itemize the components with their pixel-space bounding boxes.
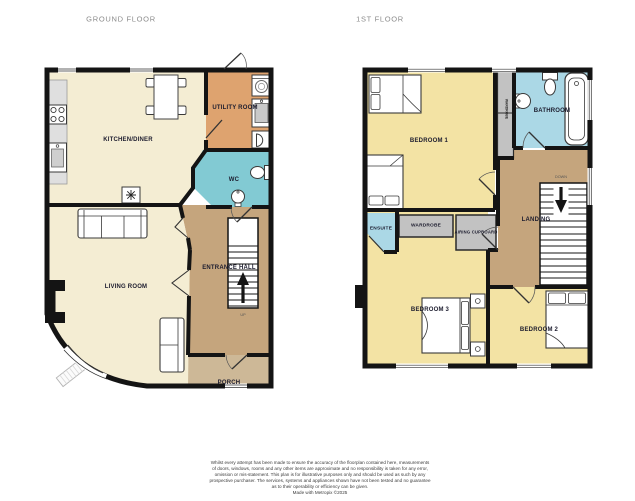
freezer-icon xyxy=(122,187,140,203)
wc-label: WC xyxy=(229,177,239,183)
stairs-down-label: DOWN xyxy=(555,175,567,179)
wardrobe-label: WARDROBE xyxy=(411,224,441,229)
kitchen-sink-icon xyxy=(49,143,67,172)
bedroom2-label: BEDROOM 2 xyxy=(520,327,558,333)
ground-floor-drawing: UP xyxy=(43,48,279,396)
window-icon xyxy=(517,364,551,369)
first-floor-title: 1ST FLOOR xyxy=(356,15,404,24)
ground-floor-plan: UP xyxy=(43,48,279,396)
bedroom1-label: BEDROOM 1 xyxy=(410,138,448,144)
kitchen-diner-label: KITCHEN/DINER xyxy=(103,137,153,143)
porch-label: PORCH xyxy=(218,380,241,386)
landing-label: LANDING xyxy=(522,217,551,223)
airing-cupboard-label: AIRING CUPBOARD xyxy=(454,230,497,235)
utility-sink-icon xyxy=(252,99,271,127)
stairs-up-label: UP xyxy=(240,313,246,317)
ff-stairs: DOWN xyxy=(540,175,587,285)
hob-icon xyxy=(49,105,67,124)
bed-icon xyxy=(546,291,588,348)
floorplan-canvas: GROUND FLOOR 1ST FLOOR xyxy=(0,0,635,501)
window-icon xyxy=(396,364,448,369)
bedroom3-label: BEDROOM 3 xyxy=(411,307,449,313)
washing-machine-icon xyxy=(252,75,271,96)
built-in-wardrobe-label: WARDROBE xyxy=(505,99,509,120)
basin-icon xyxy=(515,94,531,109)
ensuite-label: ENSUITE xyxy=(370,227,392,232)
window-icon xyxy=(588,80,593,120)
utility-room-label: UTILITY ROOM xyxy=(212,105,257,111)
window-icon xyxy=(492,68,516,73)
boiler-icon xyxy=(252,131,271,148)
window-icon xyxy=(130,68,153,73)
nightstand-icon xyxy=(471,294,486,308)
window-icon xyxy=(588,168,593,205)
bed-icon xyxy=(367,155,403,210)
first-floor-plan: WARDROBE xyxy=(352,64,600,376)
bed-icon xyxy=(369,75,421,113)
disclaimer-line: Made with Metropix ©2025 xyxy=(209,490,430,496)
entrance-hall-label: ENTRANCE HALL xyxy=(202,265,256,271)
disclaimer-text: Whilst every attempt has been made to en… xyxy=(209,460,430,497)
sofa-icon xyxy=(78,209,147,238)
window-icon xyxy=(58,68,76,73)
toilet-icon xyxy=(251,166,272,180)
living-room-label: LIVING ROOM xyxy=(105,284,148,290)
armchair-icon xyxy=(160,318,184,372)
bathroom-label: BATHROOM xyxy=(534,108,570,114)
nightstand-icon xyxy=(471,342,486,356)
door-swing-icon xyxy=(224,53,246,69)
window-icon xyxy=(408,68,445,73)
entrance-hall-floor xyxy=(180,205,273,355)
ground-floor-title: GROUND FLOOR xyxy=(86,15,156,24)
